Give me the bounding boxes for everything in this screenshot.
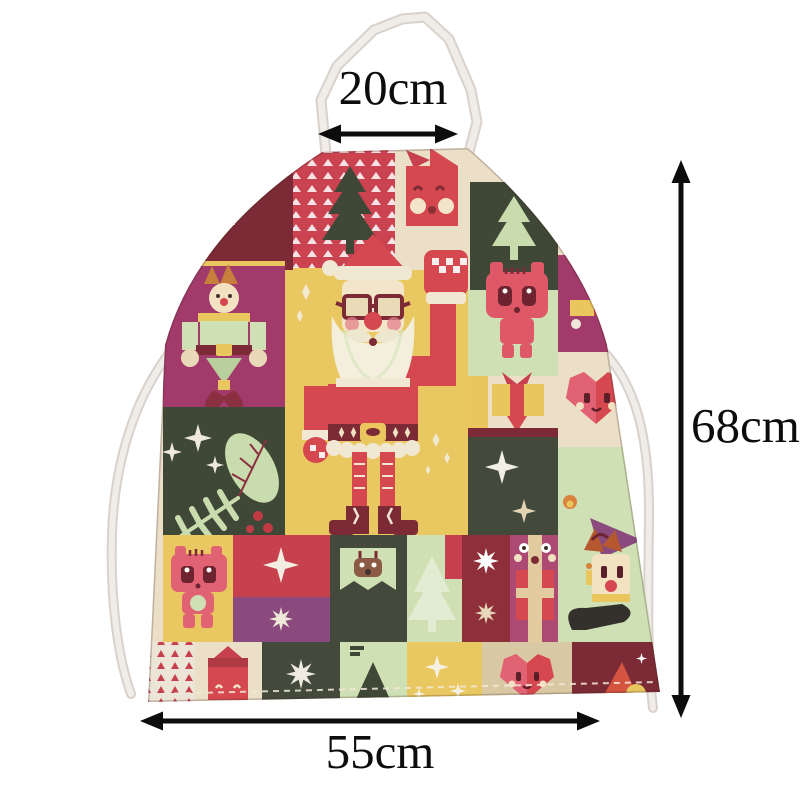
apron-product-graphic [0, 0, 800, 800]
triangle-pattern-patch [148, 642, 195, 708]
body-height-label: 68cm [691, 401, 800, 450]
product-image: 20cm 68cm 55cm [0, 0, 800, 800]
leaves-patch [162, 407, 290, 546]
mint-dark-tree-patch [340, 642, 407, 708]
body-width-label: 55cm [310, 727, 450, 776]
jester-patch [558, 447, 654, 642]
elf-patch [163, 264, 285, 409]
bear-yellow-patch [163, 535, 233, 642]
reindeer-banner-patch [330, 535, 407, 642]
mint-tree-patch [407, 535, 462, 642]
heart-patch [558, 352, 633, 447]
yellow-stars-patch [407, 642, 482, 708]
purple-star-patch [233, 597, 330, 642]
body-height-arrow [672, 160, 691, 718]
red-star-patch [233, 535, 330, 597]
cream-gift-patch [195, 642, 262, 708]
neck-width-label: 20cm [323, 63, 463, 112]
apron-body [100, 130, 700, 730]
magenta-block-patch [558, 255, 633, 355]
gift-face-patch [510, 535, 558, 642]
dark-stars-patch [468, 437, 558, 535]
darkred-stars-patch [462, 535, 510, 642]
tan-heart-patch [482, 642, 572, 708]
yellow-gift-patch [468, 372, 558, 437]
neck-width-arrow [318, 125, 458, 144]
